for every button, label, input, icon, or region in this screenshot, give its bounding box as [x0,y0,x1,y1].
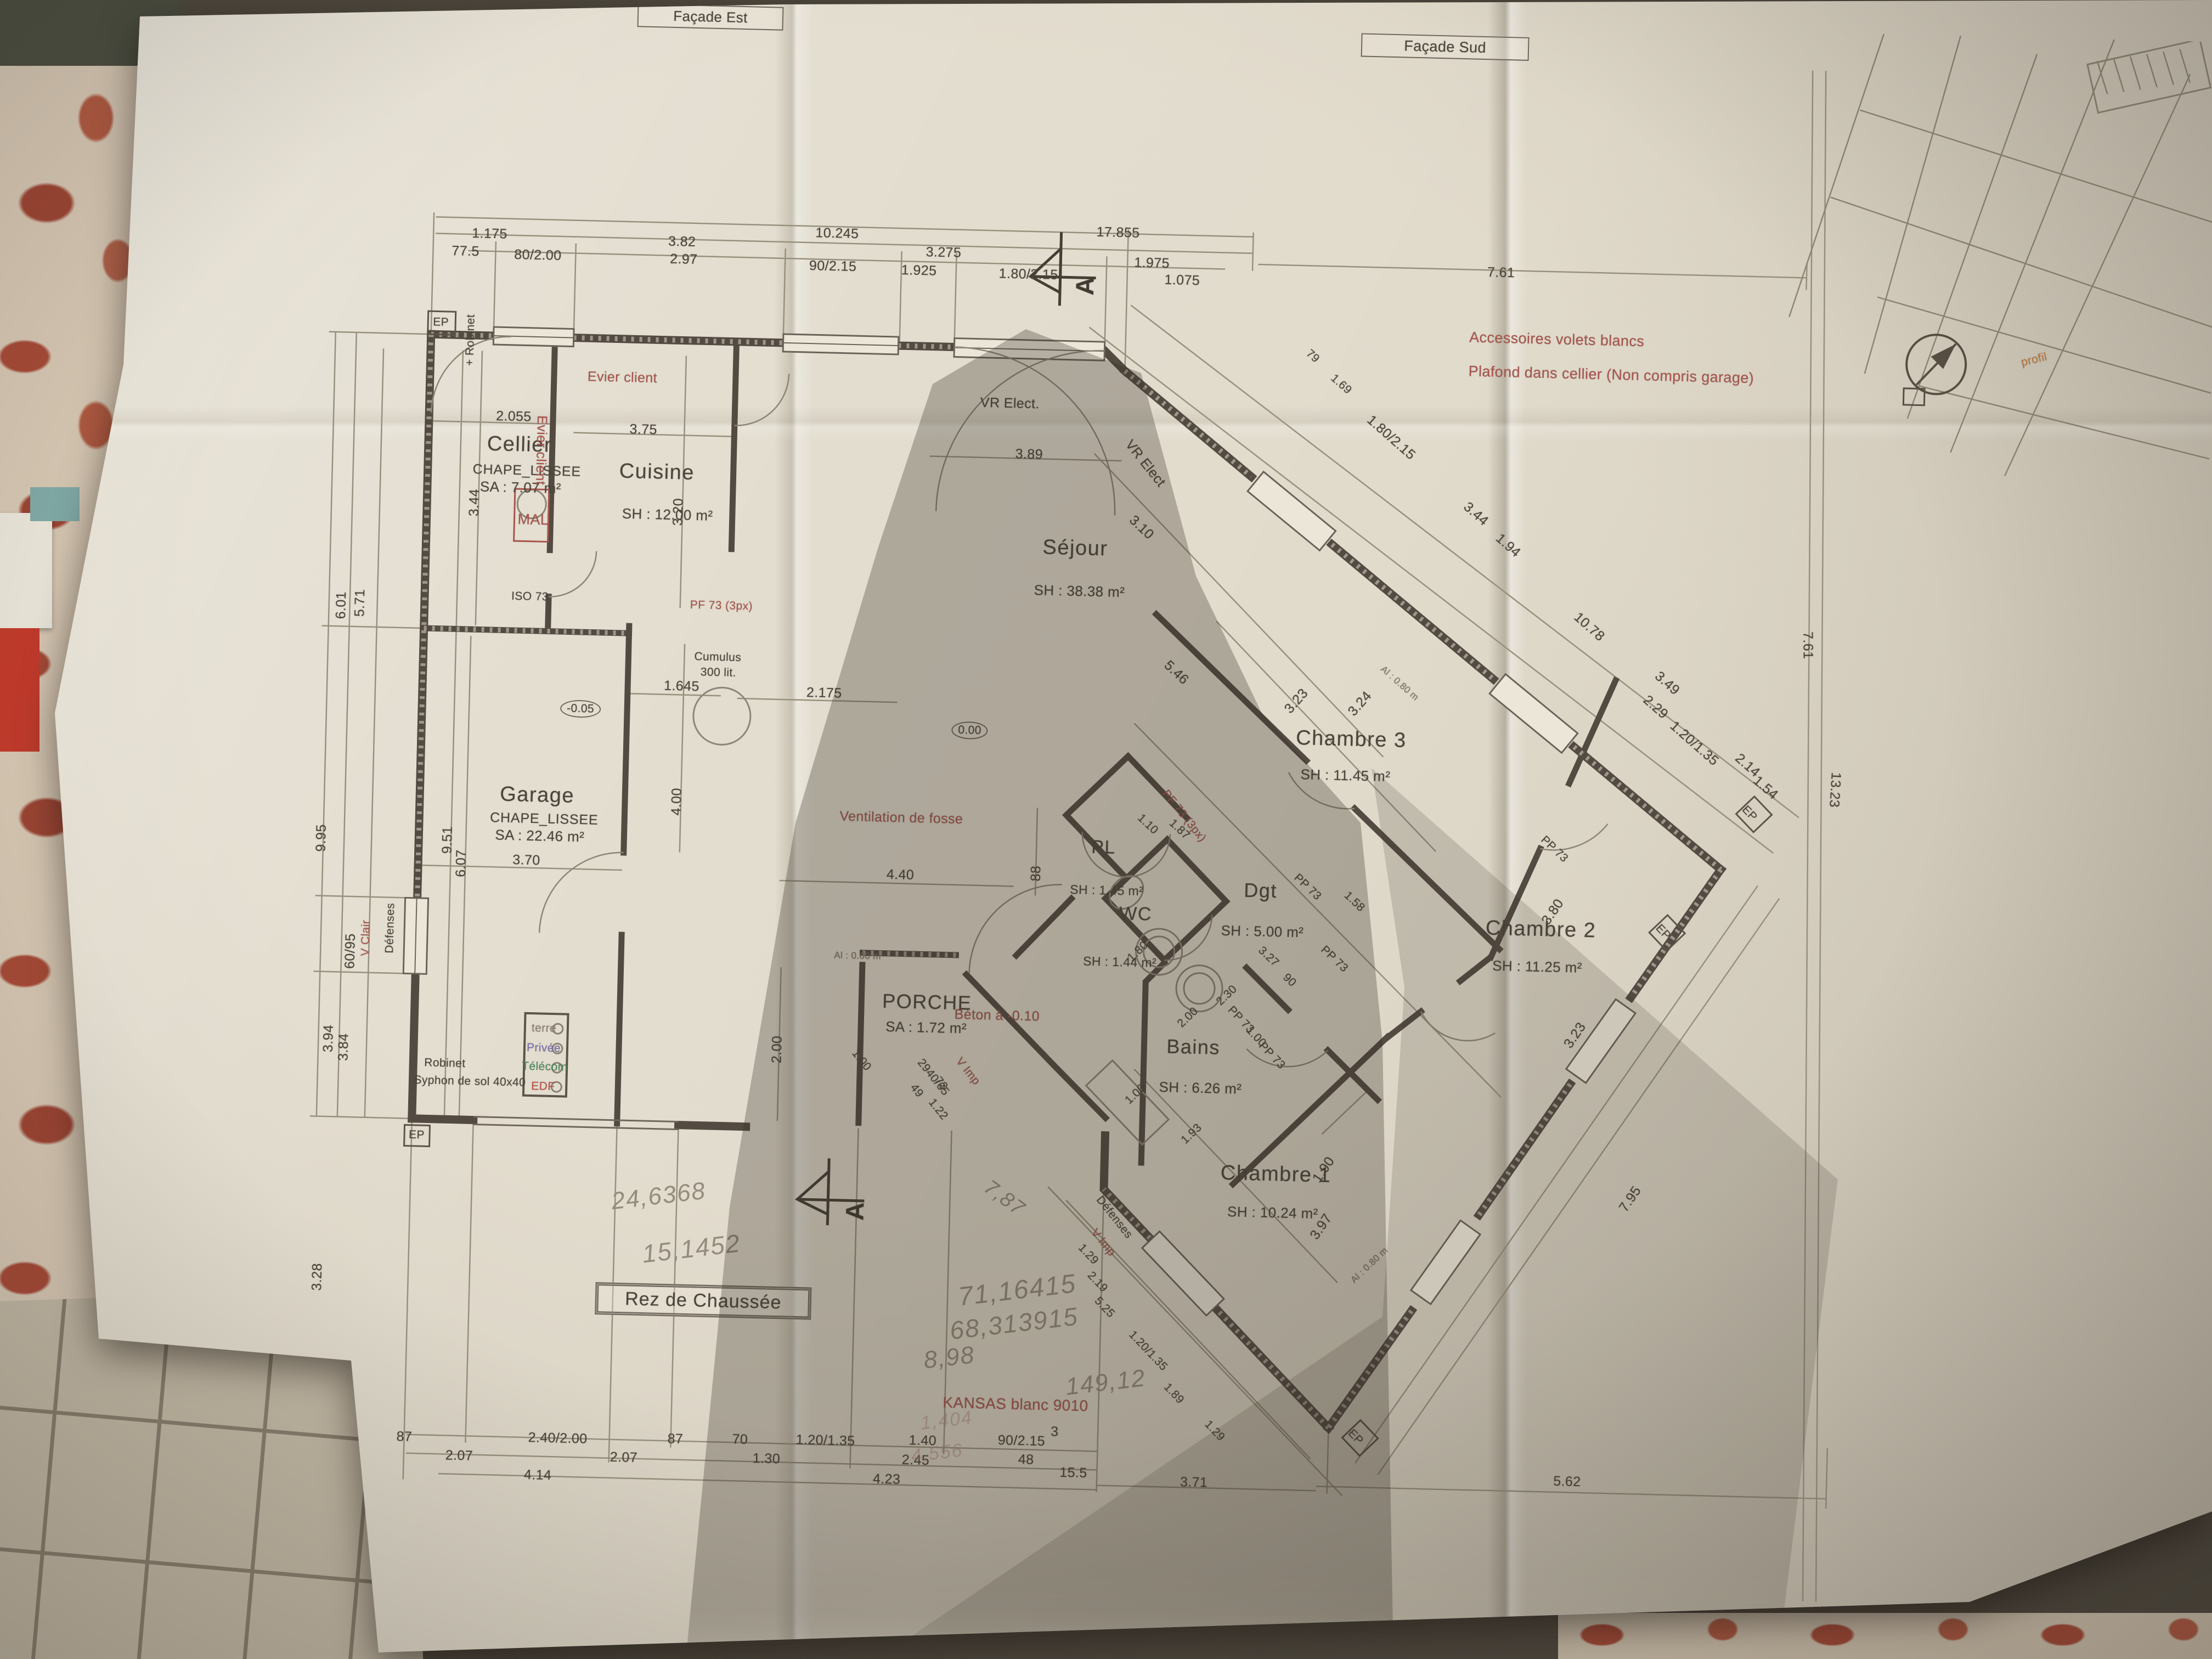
syphon: Syphon de sol 40x40 [414,1074,526,1090]
dim: 80/2.00 [514,247,562,264]
dim: 3.84 [335,1033,352,1061]
site-plan-fragment [1785,30,2212,481]
dim: 7.61 [1487,264,1515,281]
dim: 3.44 [466,489,483,517]
label-terre: terre [532,1022,557,1035]
dim: 4.00 [668,788,685,816]
dim: 3.94 [320,1024,337,1052]
dim: 90/2.15 [809,258,857,275]
note-v-clair: V Clair [359,920,373,956]
dim: 7.61 [1799,631,1816,659]
label-edf: EDF [531,1080,555,1093]
defenses-left: Défenses [383,903,397,953]
label-privee: Privée [527,1041,561,1056]
dim: 3.82 [668,234,696,250]
dim: 4.14 [524,1467,552,1483]
cumulus-capacity: 300 lit. [701,665,737,680]
room-cuisine-area: SH : 12.00 m² [622,505,713,524]
robinet-bottom: Robinet [424,1056,466,1070]
dim: 77.5 [452,243,479,259]
photo-of-floor-plan: Façade Est Façade Sud Cellier CHAPE_LISS… [0,0,2212,1659]
dim: 1.645 [664,678,699,695]
section-letter-top: A [1070,276,1100,296]
dim: 3.20 [670,498,686,526]
dim: 87 [667,1431,683,1447]
garage-door [473,1117,679,1130]
ep-bottom: EP [409,1128,425,1142]
robinet-top: + Robinet [463,314,477,366]
dim: 2.97 [670,251,698,268]
room-cellier-area: SA : 7.07 m² [480,478,562,497]
dim: 87 [396,1429,412,1445]
dim: 1.80/2.15 [998,266,1058,283]
dim: 17.855 [1096,224,1140,241]
dim: 3.275 [926,244,961,261]
ep-top: EP [433,315,449,329]
dim: 6.07 [453,849,470,877]
dim: 60/95 [342,933,359,969]
dim: 10.245 [815,225,859,242]
cumulus: Cumulus [694,650,741,664]
dim: 1.925 [901,262,936,279]
dim: 3.75 [629,421,657,438]
iso73: ISO 73 [511,590,549,604]
dim: 2.055 [496,408,532,425]
note-mal: MAL [517,511,549,528]
note-evier-client: Evier client [588,369,658,386]
room-cuisine: Cuisine [619,460,695,485]
dim: 3.70 [512,852,540,868]
dim: 1.975 [1134,255,1170,272]
dim: 2.07 [445,1447,473,1464]
room-garage-finish: CHAPE_LISSEE [490,810,599,828]
dim: 3.28 [309,1263,325,1291]
cumulus-tank [693,687,752,746]
dim: 2.40/2.00 [528,1430,588,1447]
note-evier-client-side: Evier client [532,415,550,486]
room-garage: Garage [500,783,575,808]
room-garage-area: SA : 22.46 m² [495,826,584,845]
room-cellier-finish: CHAPE_LISSEE [472,461,581,480]
dim: 6.01 [333,591,349,619]
dim: 1.075 [1164,272,1200,289]
facade-sud-label: Façade Sud [1361,33,1530,60]
dim: 9.95 [313,824,330,852]
dim: 5.71 [352,589,368,617]
dim: 13.23 [1826,772,1844,808]
room-chambre3: Chambre 3 [1296,726,1407,753]
dim: 2.07 [610,1449,637,1466]
plan-sheet: Façade Est Façade Sud Cellier CHAPE_LISS… [0,0,2212,1659]
facade-est-label: Façade Est [637,3,784,30]
note-pf73: PF 73 (3px) [690,599,753,613]
label-telecom: Télécom [522,1060,568,1074]
dim: 1.175 [472,225,507,242]
